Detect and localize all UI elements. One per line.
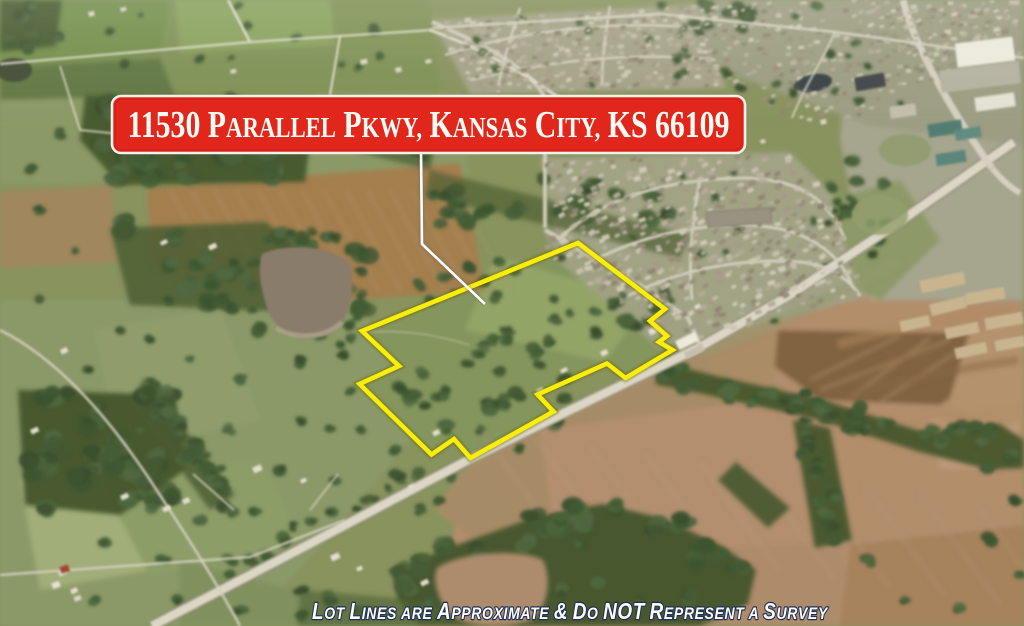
svg-text:11530 PARALLEL PKWY, KANSAS CI: 11530 PARALLEL PKWY, KANSAS CITY, KS 661… [128, 104, 730, 146]
